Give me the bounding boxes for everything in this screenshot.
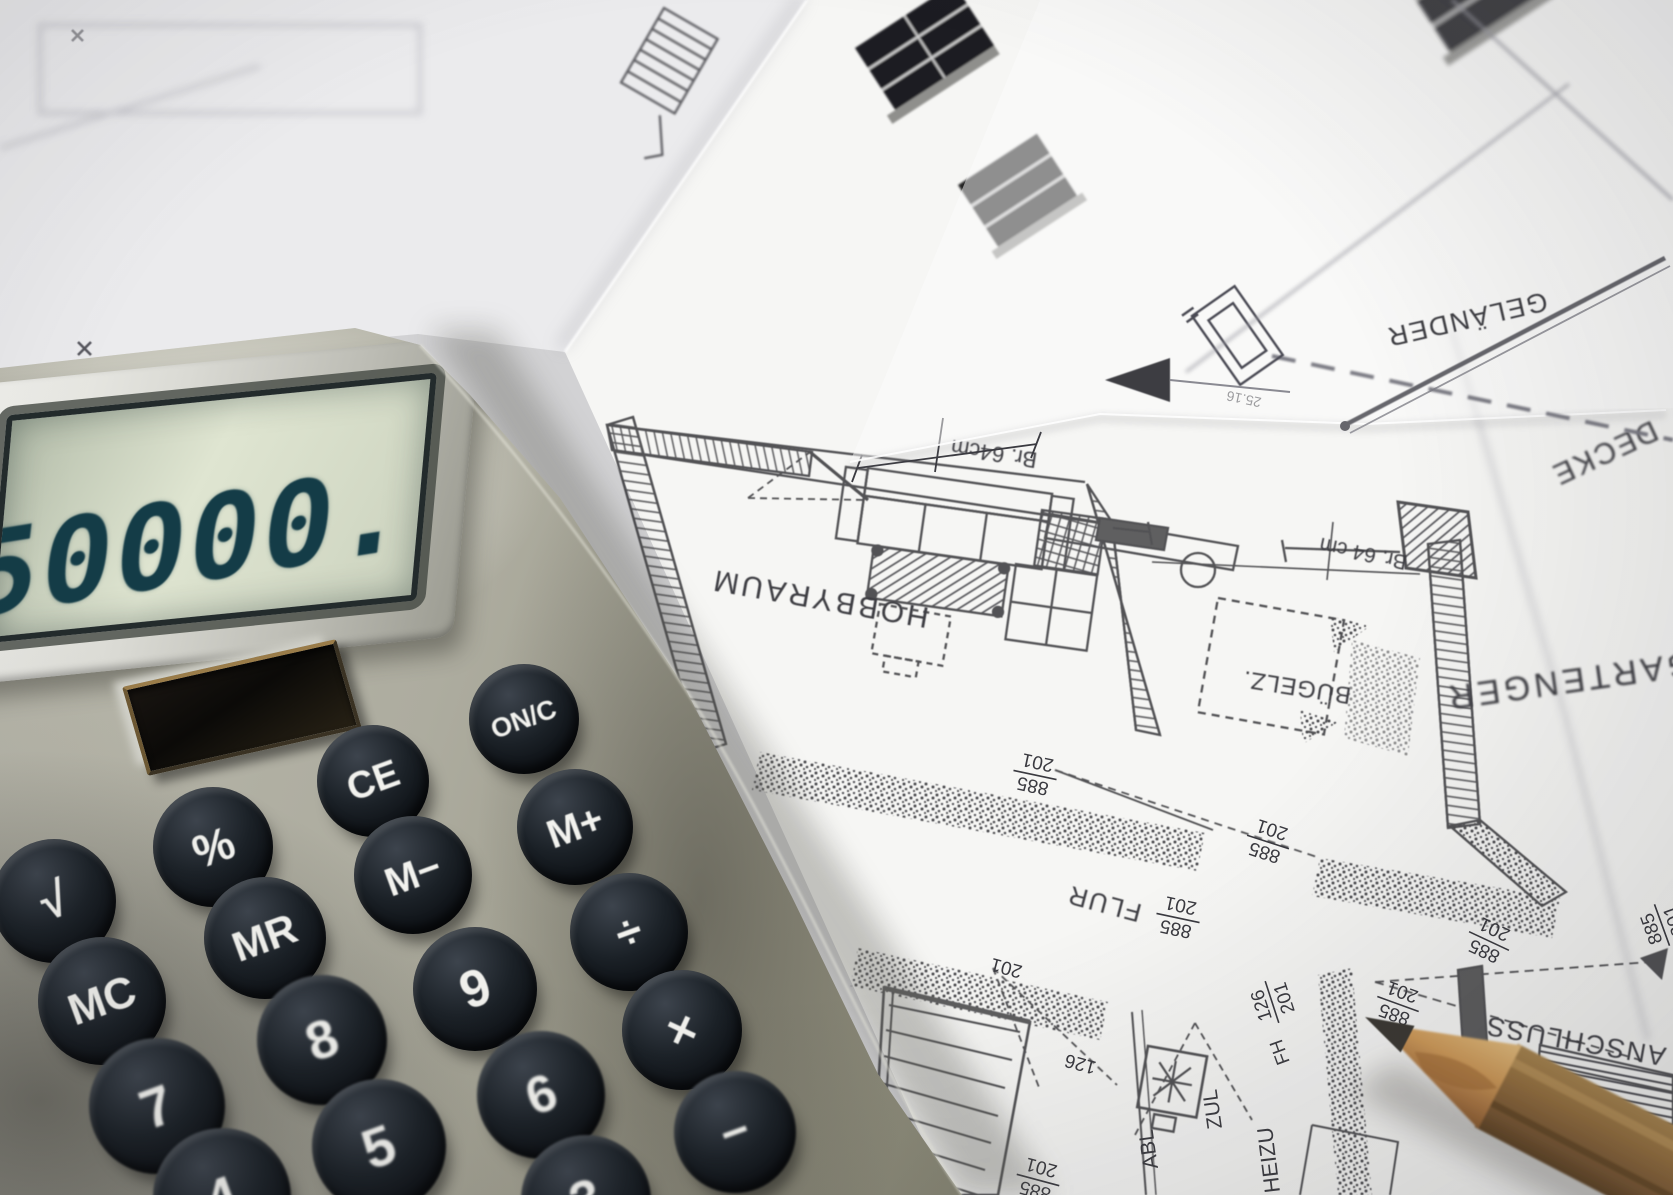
lcd-display: 250000. — [0, 372, 437, 643]
key-nine: 9 — [413, 927, 537, 1051]
display-bezel: 250000. — [0, 334, 480, 688]
key-on-clear: ON/C — [469, 664, 579, 774]
key-minus: − — [674, 1071, 796, 1193]
key-memory-plus: M+ — [517, 769, 633, 885]
key-five: 5 — [312, 1079, 446, 1195]
lcd-digits: 250000. — [0, 448, 417, 643]
wall-post — [1458, 966, 1488, 1062]
key-memory-minus: M− — [354, 816, 472, 934]
shelf-unit — [1034, 510, 1105, 574]
photo-of-calculator-on-blueprints: HOBBYRAUM FLUR BÜGELZ. ANSCHLUSS Br. 64c… — [0, 0, 1673, 1195]
